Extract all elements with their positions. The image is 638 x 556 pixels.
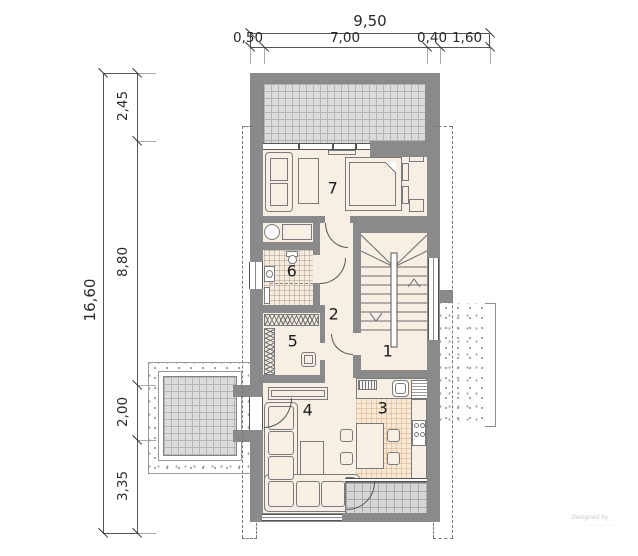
- floor-plan-drawing: 9,50 0,50 7,00 0,40 1,60 16,60 2,45 8,80…: [0, 0, 638, 556]
- kitchen-sink-basin: [395, 383, 406, 394]
- window-glass-line: [262, 517, 342, 518]
- window-glass-line: [255, 262, 256, 289]
- wall-wardrobe-right: [320, 360, 325, 383]
- dim-left-seg3: 2,00: [115, 397, 131, 427]
- dim-top-total: 9,50: [353, 12, 386, 30]
- stove-burner: [420, 423, 425, 428]
- stool-seat: [304, 355, 313, 364]
- dining-chair: [387, 429, 400, 442]
- garden-door-opening: [249, 397, 263, 430]
- wardrobe-shelving: [264, 328, 275, 375]
- room-label-6: 6: [287, 262, 298, 281]
- roof-outline-stub: [433, 126, 452, 127]
- sofa-cushion: [268, 456, 294, 480]
- wall-hall-stairs: [353, 216, 361, 333]
- dining-chair: [340, 429, 353, 442]
- dim-extension: [490, 48, 491, 64]
- dim-extension: [138, 141, 156, 142]
- dim-top-seg1: 0,50: [233, 30, 263, 46]
- sofa-cushion: [270, 183, 288, 206]
- dim-left-connector-top: [103, 73, 138, 74]
- dish-drainer: [358, 380, 377, 390]
- roof-outline-tab: [433, 538, 453, 539]
- sofa-cushion: [270, 158, 288, 181]
- wall-shelf: [328, 150, 356, 155]
- dim-top-inner-line: [250, 47, 490, 48]
- bathroom-window: [249, 262, 263, 289]
- dim-top-seg4: 1,60: [452, 30, 482, 46]
- roof-outline-tab: [242, 538, 257, 539]
- roof-outline-stub: [242, 126, 252, 127]
- roof-outline-right: [452, 126, 453, 538]
- terrace-wall-left: [250, 73, 263, 150]
- sofa-cushion: [321, 481, 345, 507]
- laundry-counter: [282, 224, 312, 240]
- dim-top-seg2: 7,00: [330, 30, 360, 46]
- stove-burner: [420, 432, 425, 437]
- coffee-table: [300, 441, 324, 475]
- stove-burner: [414, 423, 419, 428]
- knee-wall-dashed-line: [270, 283, 313, 284]
- dim-left-total: 16,60: [81, 279, 99, 322]
- window-mullion: [355, 143, 357, 150]
- room-label-1: 1: [383, 342, 394, 361]
- dim-extension: [264, 48, 265, 64]
- dim-extension: [138, 533, 156, 534]
- dim-extension: [440, 48, 441, 64]
- garden-terrace-paving: [163, 376, 237, 456]
- wall-bath-bottom: [263, 305, 325, 313]
- bed-headboard: [402, 186, 409, 204]
- roof-outline-tab: [433, 523, 434, 538]
- dining-chair: [387, 452, 400, 465]
- dim-extension: [427, 48, 428, 64]
- wall-kitchen-top: [356, 370, 440, 378]
- dim-extension: [250, 48, 251, 64]
- dim-left-connector-bottom: [103, 533, 138, 534]
- wardrobe-shelving: [264, 314, 319, 326]
- room-label-4: 4: [303, 401, 314, 420]
- terrace-wall-top: [250, 73, 440, 83]
- wall-niche-bottom: [263, 242, 320, 250]
- stairs: [361, 233, 427, 349]
- watermark-line1: Designed by: [571, 514, 608, 521]
- bedroom-window-band: [263, 143, 370, 150]
- sofa-cushion: [296, 481, 320, 507]
- room-label-3: 3: [378, 399, 389, 418]
- sofa-cushion: [268, 481, 294, 507]
- room-label-2: 2: [329, 305, 340, 324]
- dim-extension: [138, 440, 156, 441]
- dining-table: [356, 423, 384, 469]
- washbasin-bowl: [266, 270, 273, 278]
- window-mullion: [298, 143, 300, 150]
- sideboard-inner: [271, 390, 325, 397]
- dim-left-outer-line: [103, 73, 104, 533]
- terrace-paving: [263, 83, 427, 145]
- room-label-5: 5: [288, 332, 299, 351]
- bed-headboard: [402, 163, 409, 181]
- dim-extension: [138, 385, 156, 386]
- window-mullion: [332, 143, 334, 150]
- dim-extension: [138, 73, 156, 74]
- dim-left-seg2: 8,80: [115, 247, 131, 277]
- nightstand: [409, 199, 424, 212]
- bed-blanket-fold: [385, 162, 396, 173]
- wall-living-top: [250, 375, 323, 383]
- dim-top-seg3: 0,40: [417, 30, 447, 46]
- terrace-wall-right: [425, 73, 440, 143]
- sofa-cushion: [268, 431, 294, 455]
- dim-left-seg1: 2,45: [115, 91, 131, 121]
- window-glass-line: [433, 258, 434, 340]
- wardrobe-cabinet: [298, 158, 319, 204]
- washing-machine: [264, 224, 280, 240]
- roof-outline-left: [242, 126, 243, 538]
- stove-burner: [414, 432, 419, 437]
- watermark: Designed by ·· ···· ········ ···: [546, 514, 634, 530]
- fridge: [411, 380, 428, 399]
- dining-chair: [340, 452, 353, 465]
- terrace-window-band: [345, 478, 427, 482]
- balcony-gravel: [440, 303, 485, 427]
- wall-left: [250, 143, 263, 522]
- shower-tray: [264, 287, 270, 304]
- room-label-7: 7: [328, 179, 339, 198]
- wall-stairs-top: [356, 216, 427, 233]
- wall-wardrobe-right: [320, 313, 325, 343]
- dim-left-seg4: 3,35: [115, 471, 131, 501]
- watermark-line2: ·· ···· ········ ···: [546, 522, 634, 530]
- roof-outline-tab: [256, 523, 257, 538]
